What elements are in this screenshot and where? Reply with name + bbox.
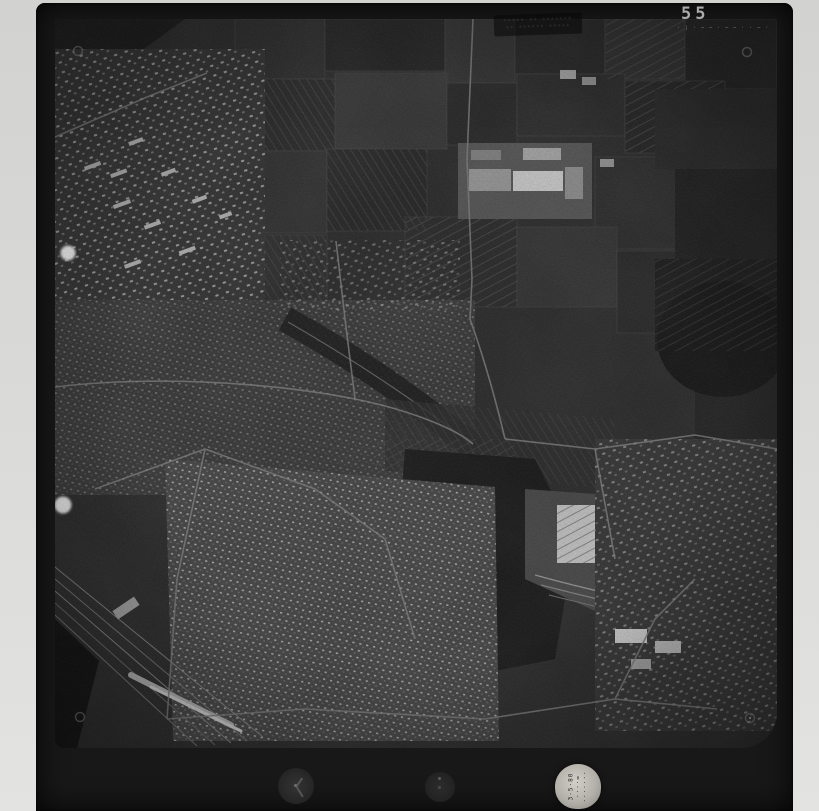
clock-center-pin [294,784,297,787]
aerial-photo [55,19,777,748]
data-plate-line2: ····= [575,775,582,798]
film-frame: 55 · ¦ · – – · – – · · – · ····· ·· ····… [36,3,793,811]
data-plate-text: 3·5·80 ····= ······· [556,764,601,809]
vignette [55,19,777,748]
scanner-background: 55 · ¦ · – – · – – · · – · ····· ·· ····… [0,0,819,811]
frame-number: 55 [681,4,709,24]
data-plate-line3: ······· [582,770,589,802]
camera-altimeter-dial [425,772,455,802]
data-plate-line1: 3·5·80 [568,773,575,801]
clock-hand-hour [295,786,303,798]
altimeter-center-dot [438,786,441,789]
data-plate: 3·5·80 ····= ······· [555,764,601,809]
frame-edge-marks: · ¦ · – – · – – · · – · [677,25,787,31]
camera-clock-dial [278,768,314,804]
altimeter-needle-dot [438,777,441,780]
photo-stamp: ····· ·· ······· ·· ······ ····· [494,12,583,36]
